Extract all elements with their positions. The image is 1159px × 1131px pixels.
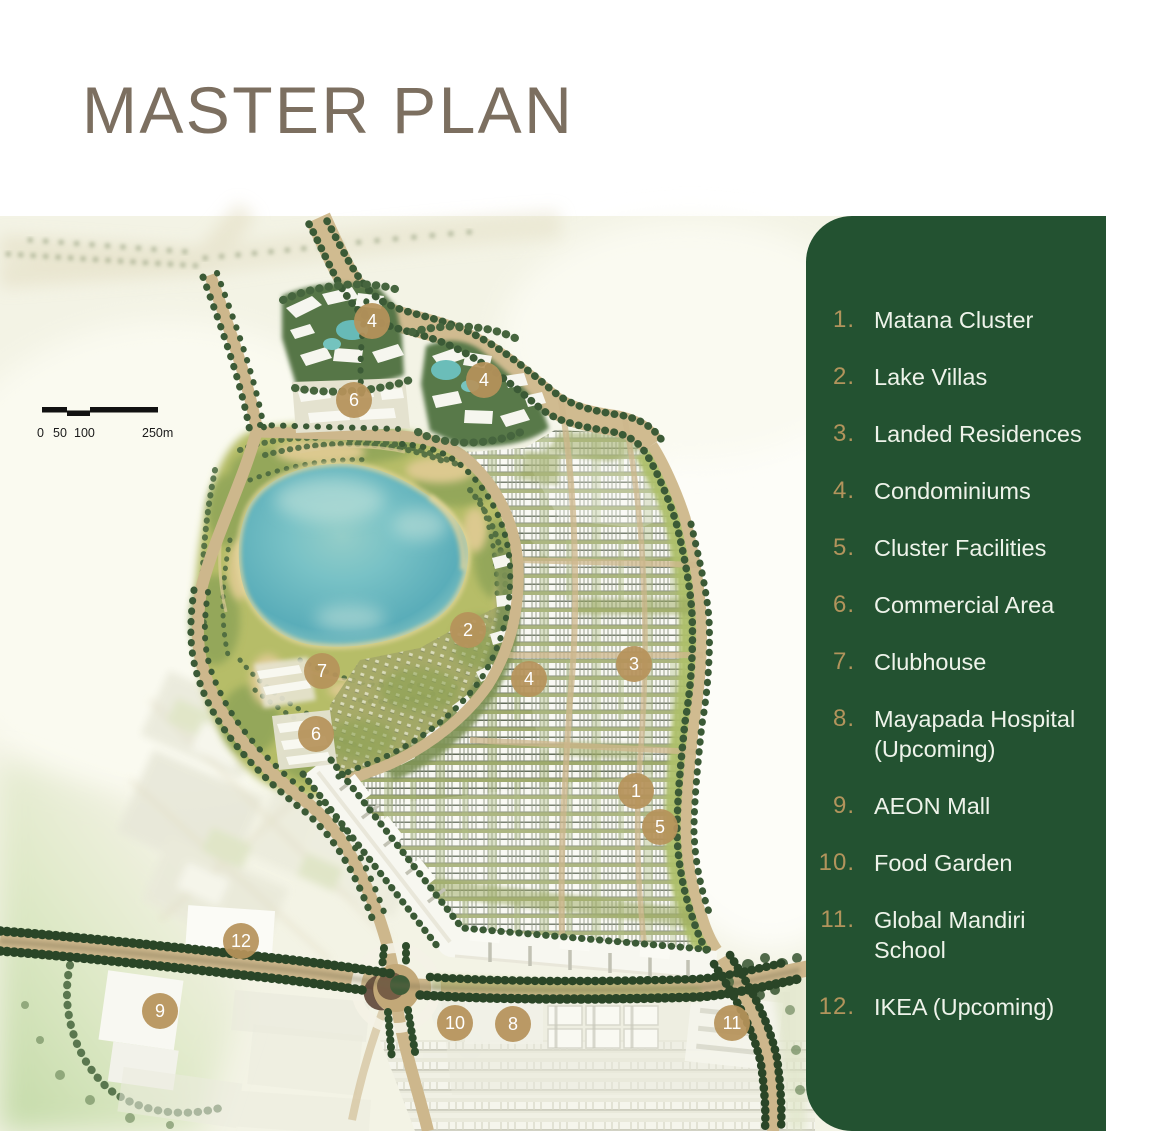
svg-text:0: 0 <box>37 426 44 440</box>
svg-text:11: 11 <box>723 1013 742 1033</box>
svg-text:100: 100 <box>74 426 95 440</box>
svg-text:4: 4 <box>524 669 534 689</box>
svg-text:4: 4 <box>367 311 377 331</box>
svg-text:6: 6 <box>349 390 359 410</box>
svg-text:6: 6 <box>311 724 321 744</box>
svg-text:10: 10 <box>445 1013 465 1033</box>
svg-text:3: 3 <box>629 654 639 674</box>
svg-text:50: 50 <box>53 426 67 440</box>
svg-text:250m: 250m <box>142 426 173 440</box>
svg-text:8: 8 <box>508 1014 518 1034</box>
svg-text:2: 2 <box>463 620 473 640</box>
svg-text:4: 4 <box>479 370 489 390</box>
svg-text:1: 1 <box>631 781 641 801</box>
svg-text:5: 5 <box>655 817 665 837</box>
svg-text:9: 9 <box>155 1001 165 1021</box>
svg-text:12: 12 <box>231 931 251 951</box>
svg-text:7: 7 <box>317 661 327 681</box>
